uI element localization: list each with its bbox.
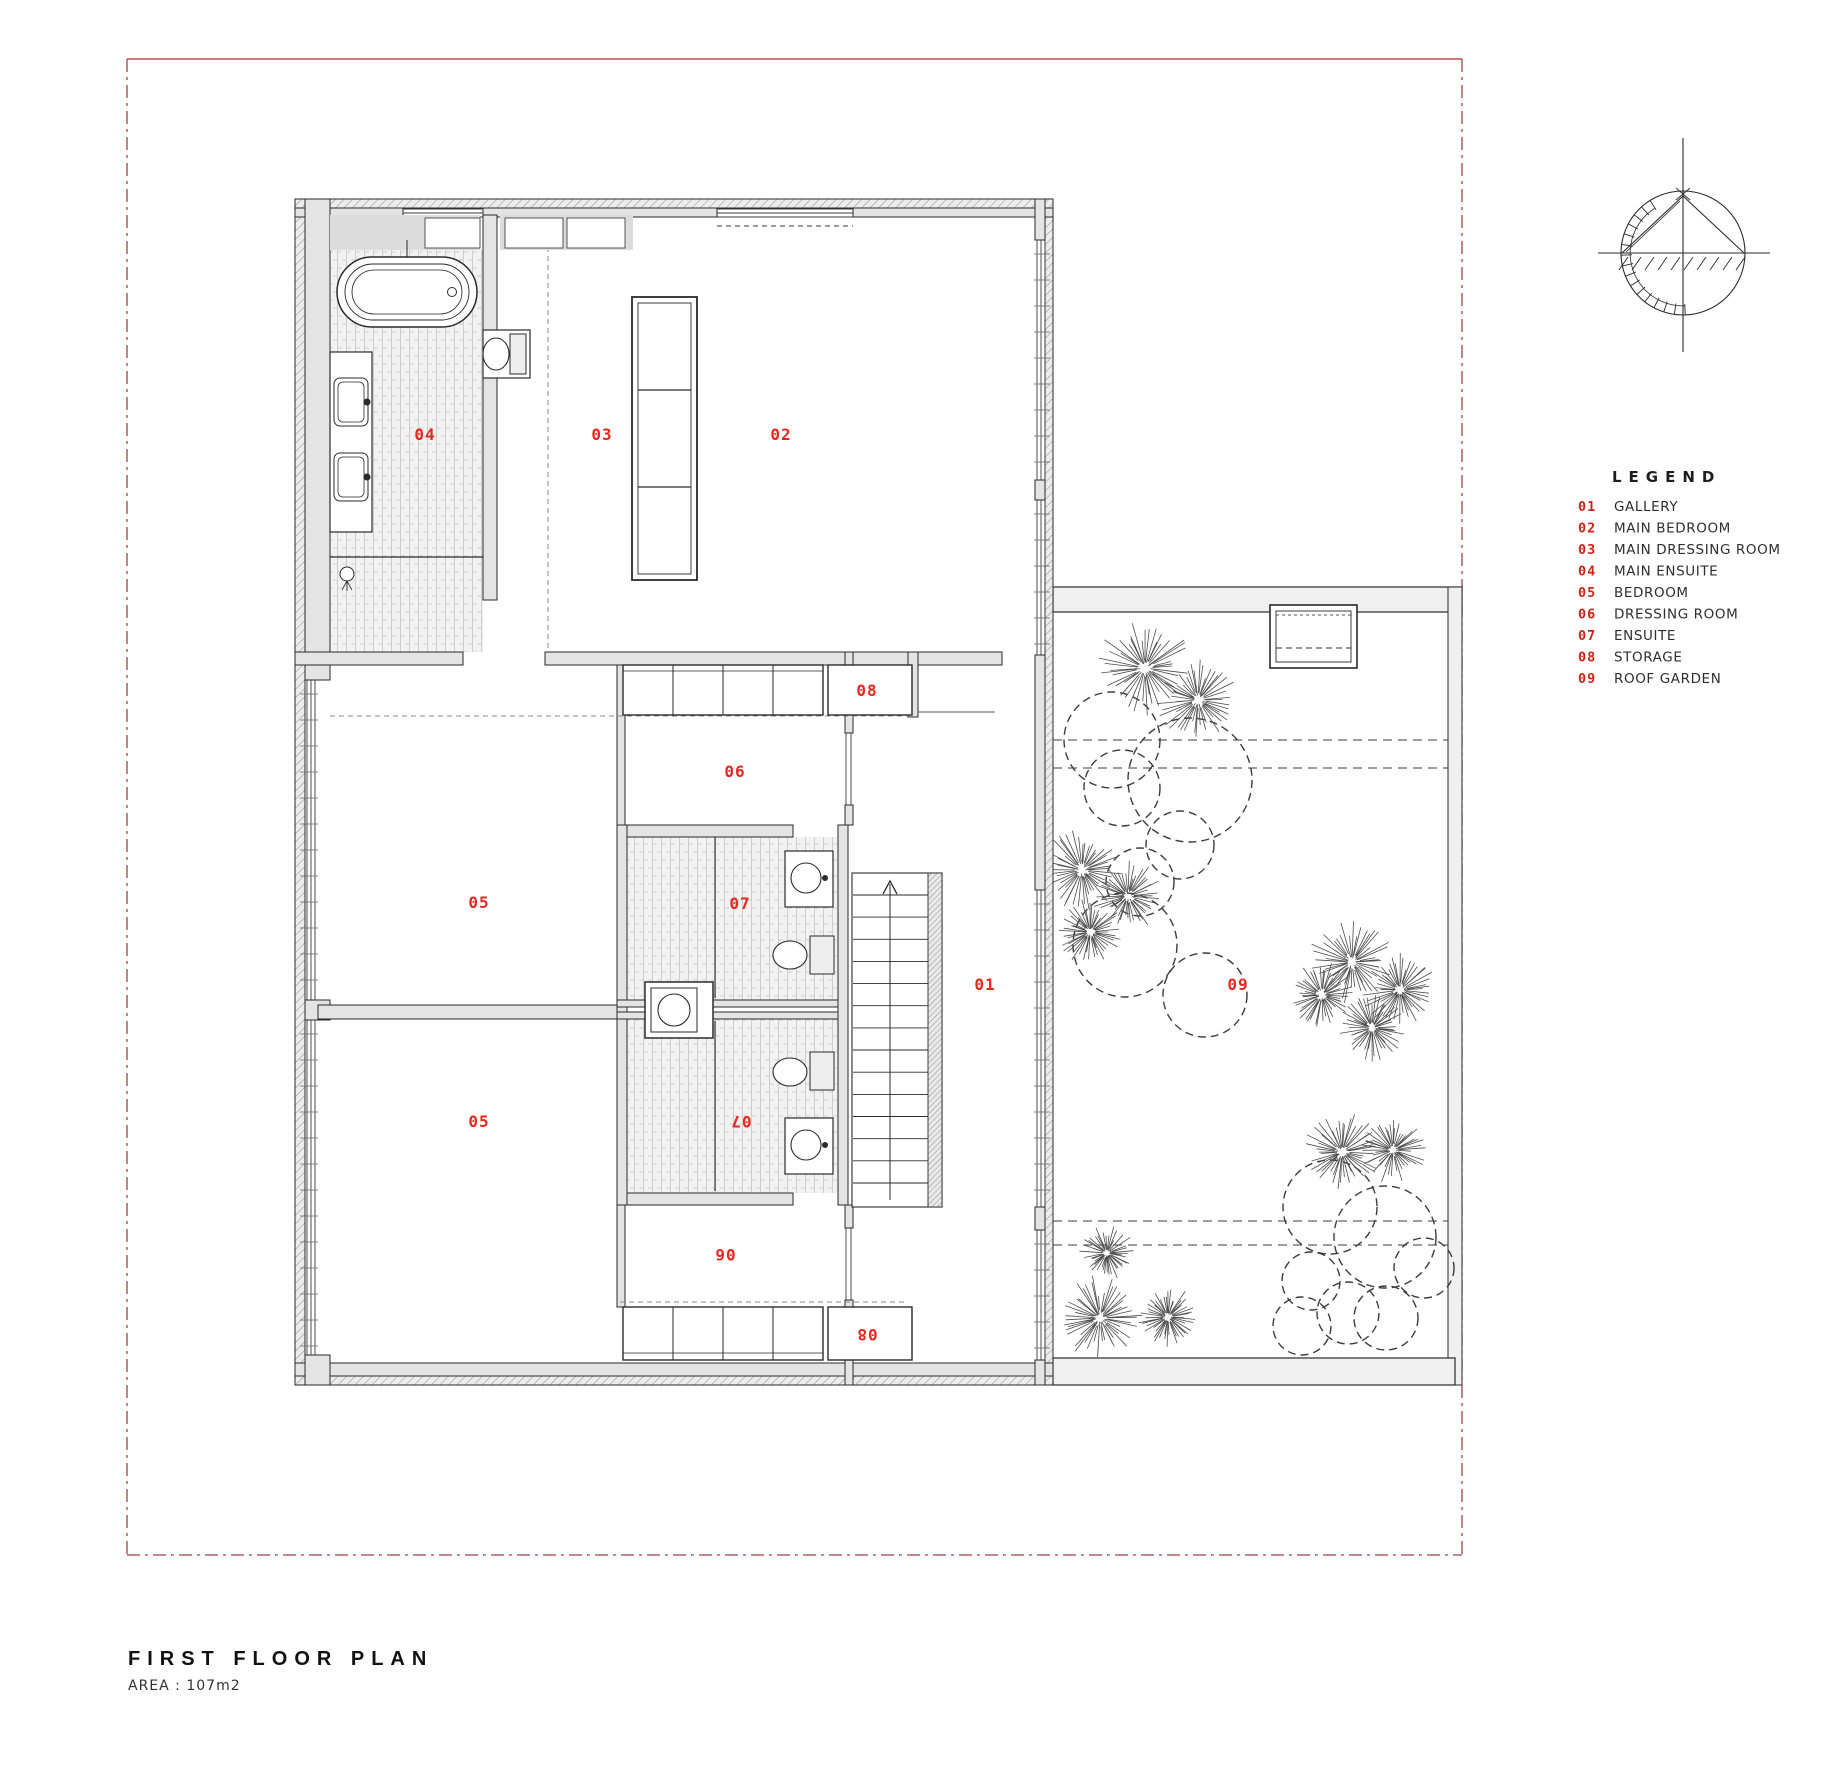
legend-num-09: 09: [1578, 671, 1596, 687]
room-label-03: 03: [591, 425, 612, 444]
legend-row: 08 STORAGE: [1578, 650, 1682, 666]
room-label-05-lower: 05: [468, 1112, 489, 1131]
wardrobe-tall-bedroom: [632, 297, 697, 580]
compass-ground-hatch: [1619, 257, 1745, 270]
room-label-08-upper: 08: [856, 681, 877, 700]
room-label-02: 02: [770, 425, 791, 444]
sink-lower-07: [785, 1118, 833, 1174]
north-symbol-icon: [1598, 138, 1770, 352]
sink-upper-07: [785, 851, 833, 907]
title-block: FIRST FLOOR PLAN AREA : 107m2: [128, 1648, 433, 1694]
window-top-2: [717, 209, 853, 226]
room-label-04: 04: [414, 425, 435, 444]
room-label-05-upper: 05: [468, 893, 489, 912]
legend-row: 01 GALLERY: [1578, 499, 1678, 515]
legend-label-02: MAIN BEDROOM: [1614, 521, 1731, 537]
staircase: [852, 873, 942, 1207]
legend-label-06: DRESSING ROOM: [1614, 607, 1738, 623]
legend-row: 05 BEDROOM: [1578, 585, 1689, 601]
room-label-08-lower: 08: [856, 1325, 877, 1344]
dressing-cabinet-2: [567, 218, 625, 248]
room-label-09: 09: [1227, 975, 1248, 994]
floor-plan-sheet: 01 02 03 04 05 05 06 06 07 07 08 08 09 L…: [0, 0, 1840, 1768]
garden-skylight: [1270, 605, 1357, 668]
toilet-ensuite-04: [483, 330, 530, 378]
legend-row: 09 ROOF GARDEN: [1578, 671, 1721, 687]
legend-num-07: 07: [1578, 628, 1596, 644]
wardrobe-row-bottom: [623, 1307, 823, 1360]
wardrobe-row-top: [623, 665, 823, 715]
legend-row: 04 MAIN ENSUITE: [1578, 564, 1718, 580]
legend-label-01: GALLERY: [1614, 499, 1678, 515]
room-label-07-lower: 07: [730, 1112, 751, 1131]
legend: LEGEND 01 GALLERY 02 MAIN BEDROOM 03 MAI…: [1578, 468, 1781, 687]
legend-num-04: 04: [1578, 564, 1596, 580]
legend-label-09: ROOF GARDEN: [1614, 671, 1721, 687]
legend-label-08: STORAGE: [1614, 650, 1682, 666]
vanity-counter: [330, 352, 372, 532]
dressing-cabinet-1: [505, 218, 563, 248]
legend-row: 07 ENSUITE: [1578, 628, 1676, 644]
legend-label-07: ENSUITE: [1614, 628, 1676, 644]
room-label-07-upper: 07: [729, 894, 750, 913]
legend-title: LEGEND: [1612, 468, 1721, 486]
floor-plan-canvas: 01 02 03 04 05 05 06 06 07 07 08 08 09 L…: [0, 0, 1840, 1768]
page-title: FIRST FLOOR PLAN: [128, 1648, 433, 1670]
room-label-06-upper: 06: [724, 762, 745, 781]
roof-garden: [1049, 587, 1463, 1385]
legend-num-01: 01: [1578, 499, 1596, 515]
room-label-01: 01: [974, 975, 995, 994]
stair-stringer: [928, 873, 942, 1207]
legend-num-08: 08: [1578, 650, 1596, 666]
legend-num-05: 05: [1578, 585, 1596, 601]
legend-row: 02 MAIN BEDROOM: [1578, 521, 1731, 537]
area-label: AREA : 107m2: [128, 1678, 241, 1694]
legend-label-03: MAIN DRESSING ROOM: [1614, 542, 1781, 558]
legend-label-05: BEDROOM: [1614, 585, 1689, 601]
floor-finishes: [330, 250, 838, 1193]
legend-label-04: MAIN ENSUITE: [1614, 564, 1718, 580]
legend-row: 06 DRESSING ROOM: [1578, 607, 1738, 623]
shared-sink-niche: [645, 982, 713, 1038]
garden-parapet-top: [1053, 587, 1462, 612]
garden-parapet-right: [1448, 587, 1462, 1385]
ensuite-cabinet: [425, 218, 480, 248]
legend-num-03: 03: [1578, 542, 1596, 558]
legend-row: 03 MAIN DRESSING ROOM: [1578, 542, 1781, 558]
garden-parapet-bottom: [1053, 1358, 1455, 1385]
legend-num-06: 06: [1578, 607, 1596, 623]
room-label-06-lower: 06: [714, 1245, 735, 1264]
legend-num-02: 02: [1578, 521, 1596, 537]
